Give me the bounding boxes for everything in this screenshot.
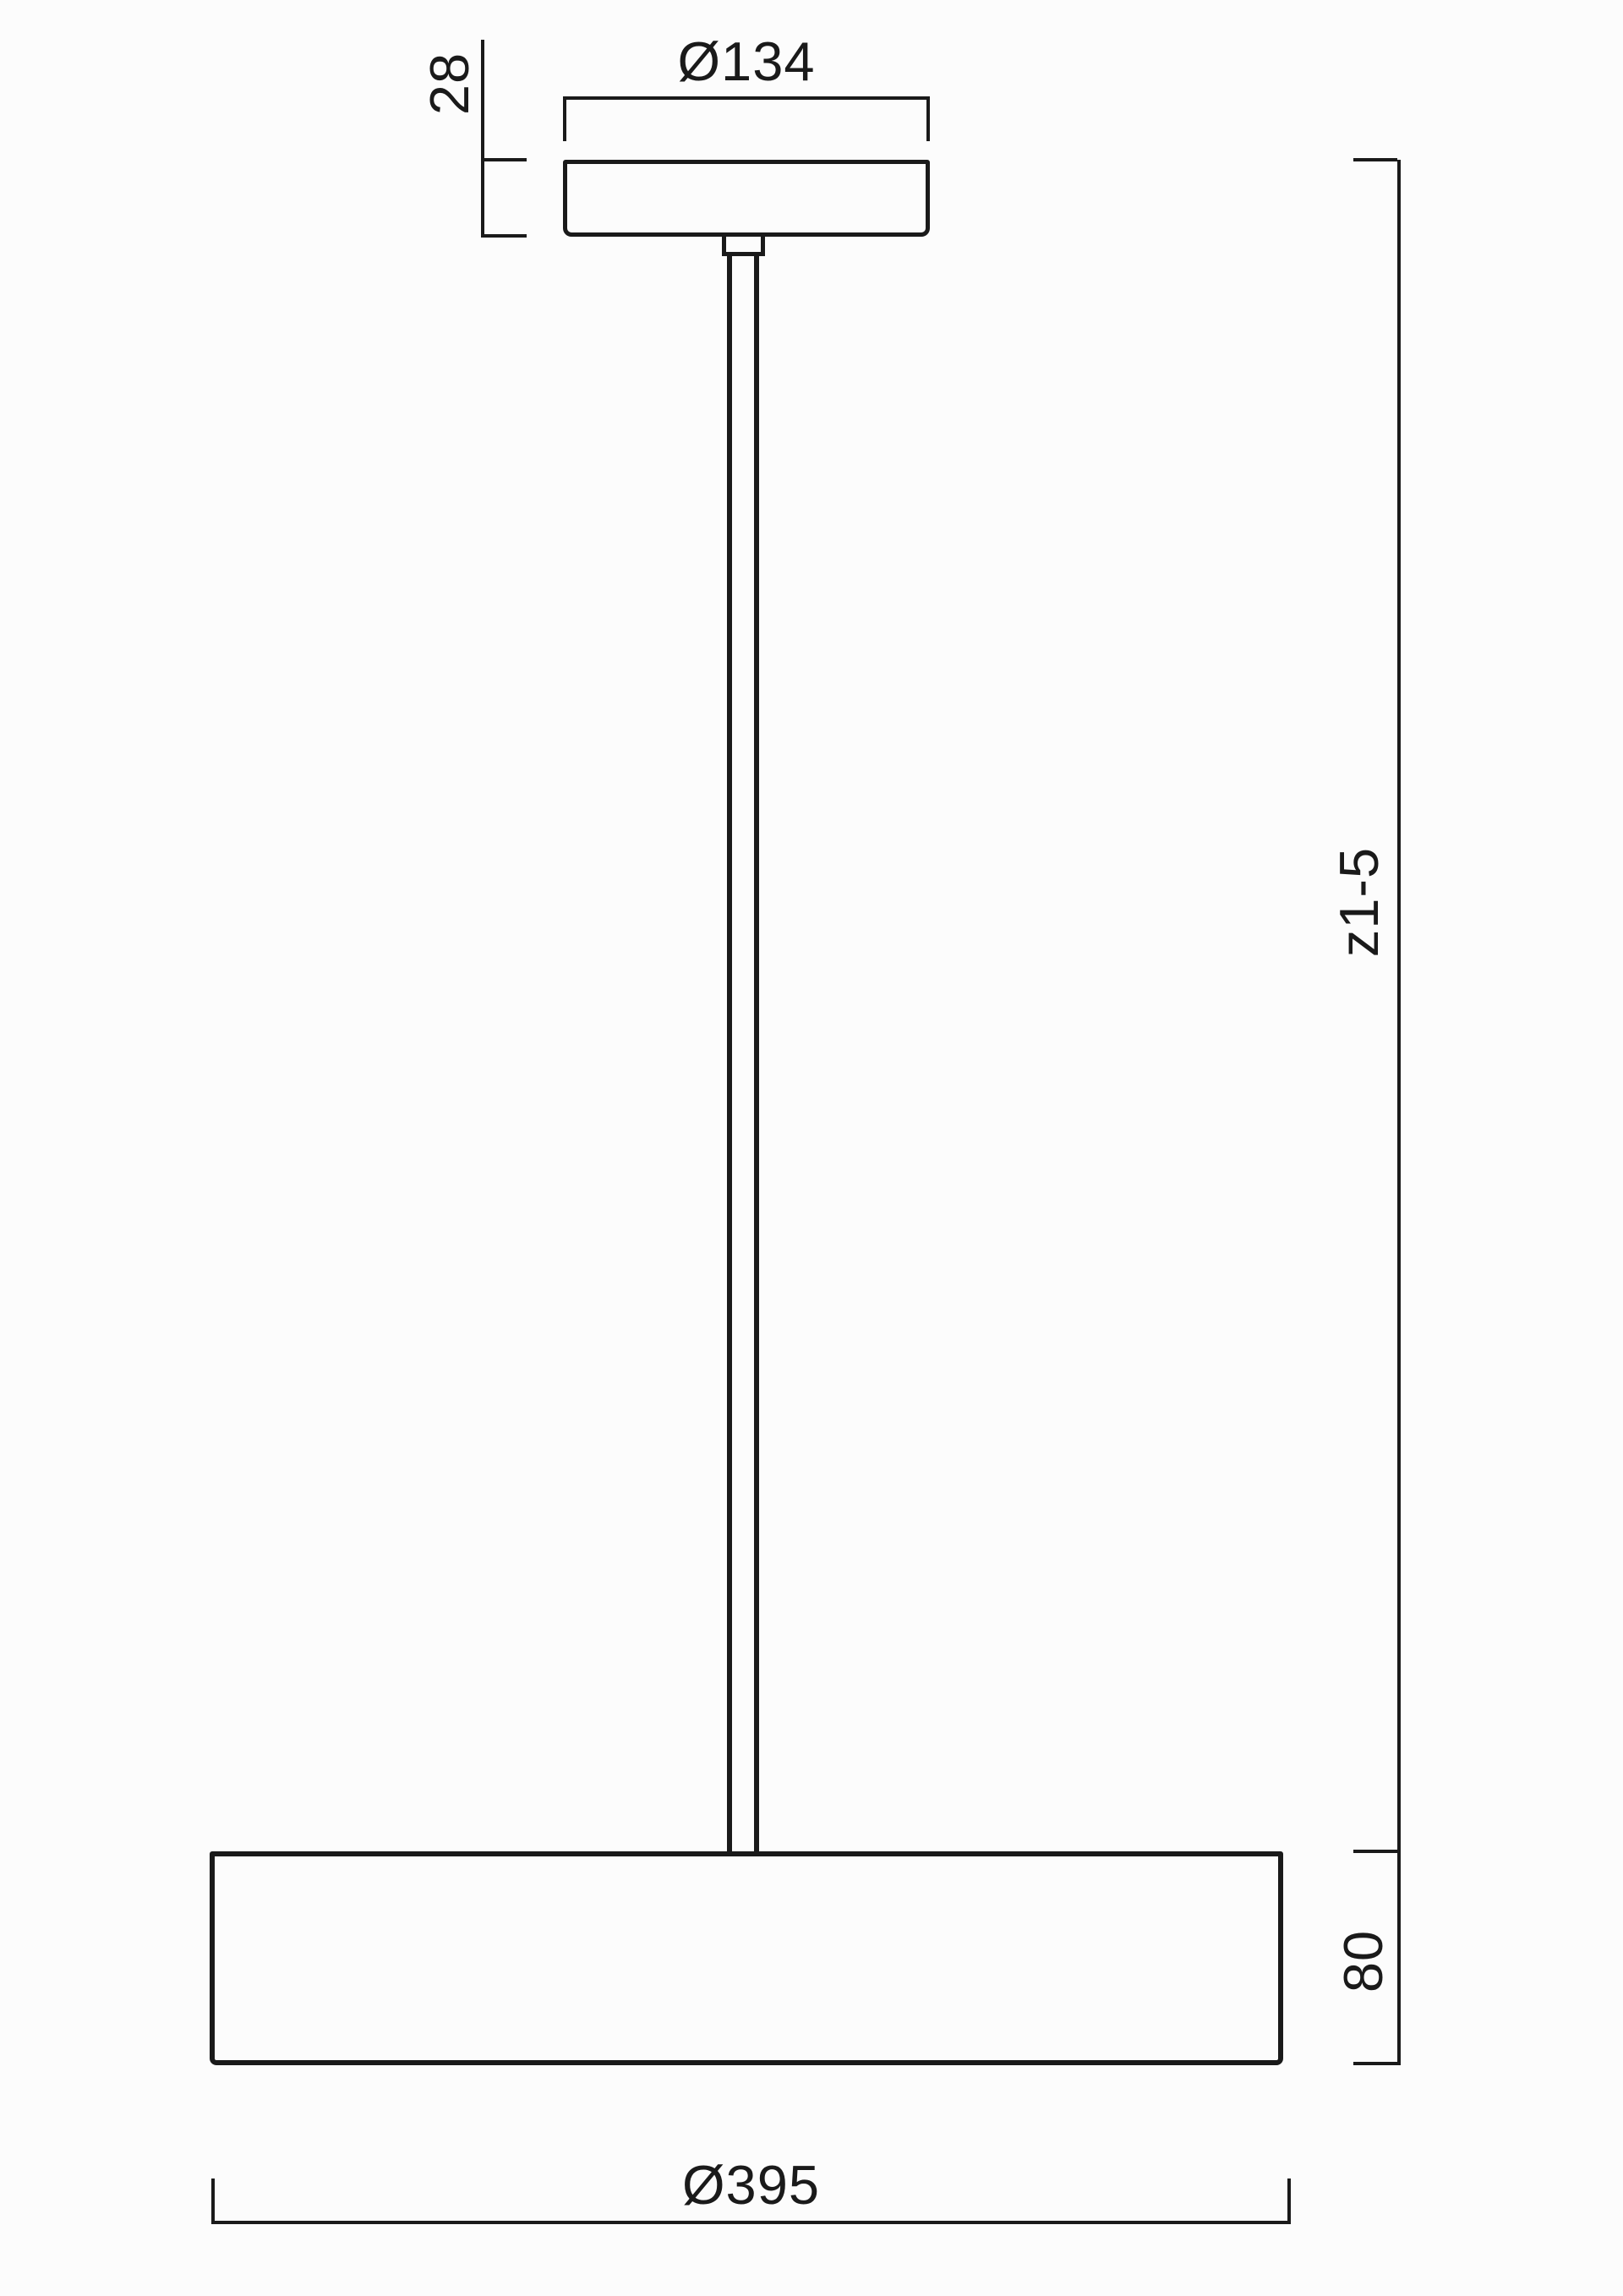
canopy-height-tick-bottom <box>483 234 527 238</box>
canopy-diameter-tick-right <box>926 97 930 141</box>
pendant-length-tick-middle <box>1353 1850 1397 1853</box>
pendant-length-dim-line <box>1397 160 1401 2065</box>
canopy-height-label: 28 <box>422 25 478 143</box>
canopy-height-dim-line <box>481 40 484 238</box>
canopy-outline <box>563 160 930 237</box>
canopy-diameter-label: Ø134 <box>563 34 930 90</box>
canopy-height-tick-top <box>483 158 527 161</box>
shade-outline <box>210 1851 1283 2065</box>
shade-height-label: 80 <box>1336 1894 1391 2029</box>
pendant-length-label: z1-5 <box>1331 792 1387 1012</box>
canopy-diameter-tick-left <box>563 97 566 141</box>
shade-diameter-dim-line <box>211 2221 1291 2224</box>
stem-mount-outline <box>722 237 765 256</box>
pendant-length-tick-bottom <box>1353 2062 1397 2065</box>
shade-diameter-tick-right <box>1287 2178 1291 2222</box>
suspension-rod <box>727 256 759 1851</box>
pendant-length-tick-top <box>1353 158 1397 161</box>
shade-diameter-label: Ø395 <box>211 2157 1291 2213</box>
technical-drawing-canvas: Ø134 28 z1-5 80 Ø395 <box>0 0 1623 2296</box>
shade-diameter-tick-left <box>211 2178 215 2222</box>
canopy-diameter-dim-line <box>563 96 930 100</box>
